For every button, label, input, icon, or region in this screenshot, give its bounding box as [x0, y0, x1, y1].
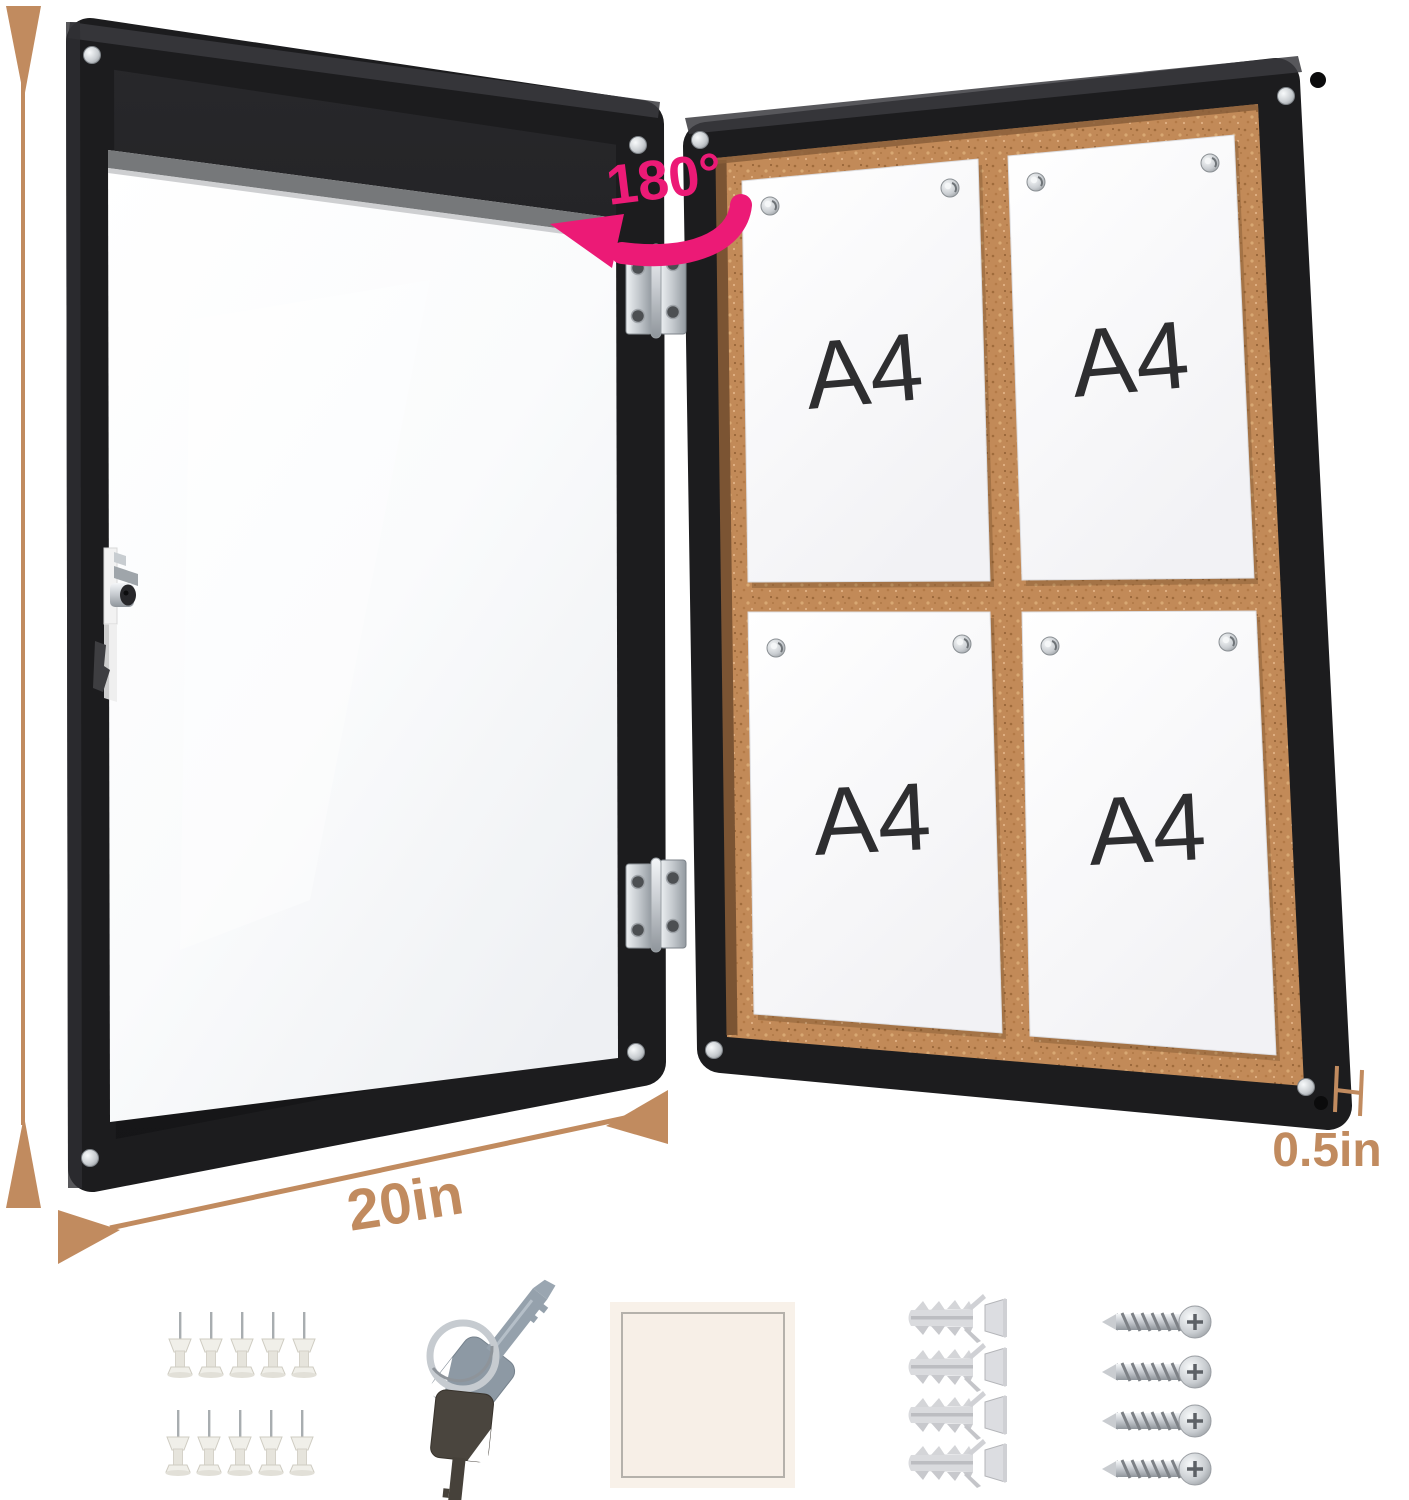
accessory-pushpins [166, 1312, 317, 1476]
accessory-screws [1102, 1306, 1211, 1485]
a4-label: A4 [811, 763, 934, 876]
a4-label: A4 [1086, 773, 1209, 886]
depth-dimension-label: 0.5in [1272, 1124, 1381, 1177]
push-pin-icon [228, 1410, 253, 1476]
paper-pin [941, 179, 959, 197]
paper-pin [1027, 173, 1045, 191]
lock-face [120, 585, 136, 606]
width-arrow-head-right [606, 1090, 668, 1144]
push-pin-icon [199, 1312, 224, 1378]
paper-pin [1219, 633, 1237, 651]
height-arrow-head-top [6, 6, 41, 98]
push-pin-icon [292, 1312, 317, 1378]
paper-pin [1201, 154, 1219, 172]
adhesive-pad-inner [622, 1313, 784, 1477]
a4-label: A4 [1067, 301, 1193, 418]
paper-pin [1041, 637, 1059, 655]
board-corner-rivet [1278, 88, 1295, 105]
door-corner-rivet [628, 1044, 645, 1061]
product-image: 26in [0, 0, 1409, 1500]
push-pin-icon [259, 1410, 284, 1476]
mounting-hole [1314, 1096, 1328, 1110]
door-corner-rivet [84, 47, 101, 64]
bulletin-board-diagram: 26in [0, 0, 1409, 1500]
accessory-adhesive-pad [610, 1302, 795, 1488]
glass-door [66, 22, 660, 1188]
push-pin-icon [197, 1410, 222, 1476]
accessory-keys [419, 1263, 573, 1500]
push-pin-icon [261, 1312, 286, 1378]
board-corner-rivet [706, 1042, 723, 1059]
screw-icon [1102, 1356, 1211, 1388]
board-corner-rivet [1298, 1079, 1315, 1096]
wall-anchor-icon [909, 1294, 1008, 1343]
paper-pin [767, 639, 785, 657]
lock-keyhole [124, 591, 129, 596]
push-pin-icon [230, 1312, 255, 1378]
wall-anchor-icon [909, 1391, 1008, 1440]
width-arrow-head-left [58, 1210, 120, 1264]
lock-plate-lower [104, 624, 117, 702]
push-pin-icon [168, 1312, 193, 1378]
paper-pin [761, 197, 779, 215]
screw-icon [1102, 1306, 1211, 1338]
hinge-bottom [626, 858, 686, 952]
wall-anchor-icon [909, 1439, 1008, 1488]
push-pin-icon [166, 1410, 191, 1476]
paper-pin [953, 635, 971, 653]
accessory-anchors [909, 1294, 1008, 1488]
door-frame-left-face [66, 22, 82, 1188]
push-pin-icon [290, 1410, 315, 1476]
screw-icon [1102, 1453, 1211, 1485]
key-icon [419, 1389, 494, 1500]
screw-icon [1102, 1405, 1211, 1437]
door-corner-rivet [82, 1150, 99, 1167]
a4-label: A4 [801, 313, 927, 430]
height-arrow-head-bottom [6, 1116, 41, 1208]
wall-anchor-icon [909, 1343, 1008, 1392]
cork-board: A4 A4 A4 A4 [685, 56, 1328, 1110]
mounting-hole [1310, 72, 1326, 88]
